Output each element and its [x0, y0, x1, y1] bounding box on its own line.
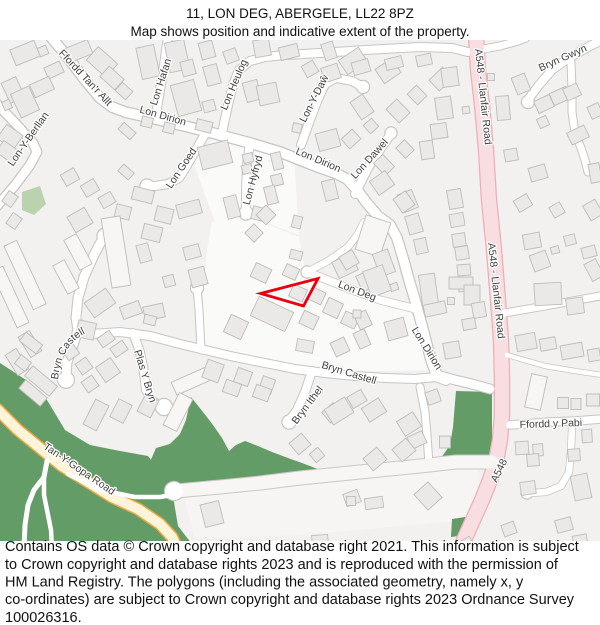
svg-text:11, LON DEG, ABERGELE, LL22 8P: 11, LON DEG, ABERGELE, LL22 8PZ	[186, 6, 414, 21]
svg-text:100026316.: 100026316.	[5, 610, 82, 625]
svg-text:HM Land Registry. The polygons: HM Land Registry. The polygons (includin…	[5, 575, 524, 591]
svg-text:Ffordd y Pabi: Ffordd y Pabi	[519, 417, 582, 431]
svg-text:Map shows position and indicat: Map shows position and indicative extent…	[131, 24, 470, 39]
svg-text:Contains OS data © Crown copyr: Contains OS data © Crown copyright and d…	[5, 539, 579, 555]
svg-text:co-ordinates) are subject to C: co-ordinates) are subject to Crown copyr…	[5, 592, 575, 608]
svg-text:to Crown copyright and databas: to Crown copyright and database rights 2…	[5, 557, 559, 573]
